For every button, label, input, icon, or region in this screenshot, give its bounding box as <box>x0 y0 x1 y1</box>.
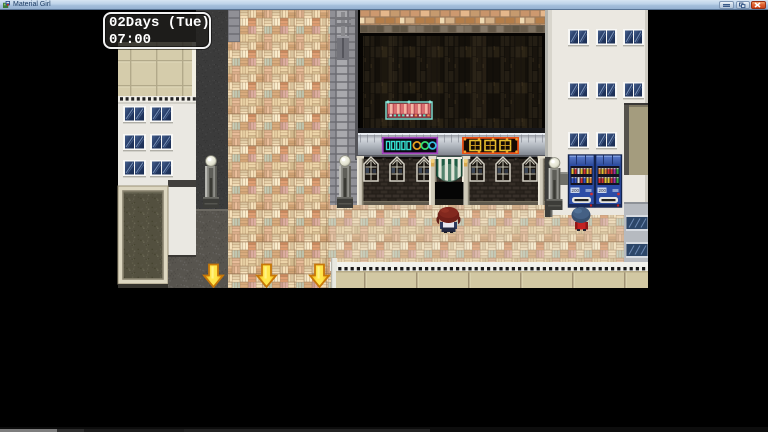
svg-text:200: 200 <box>572 188 580 193</box>
svg-text:200: 200 <box>599 188 607 193</box>
